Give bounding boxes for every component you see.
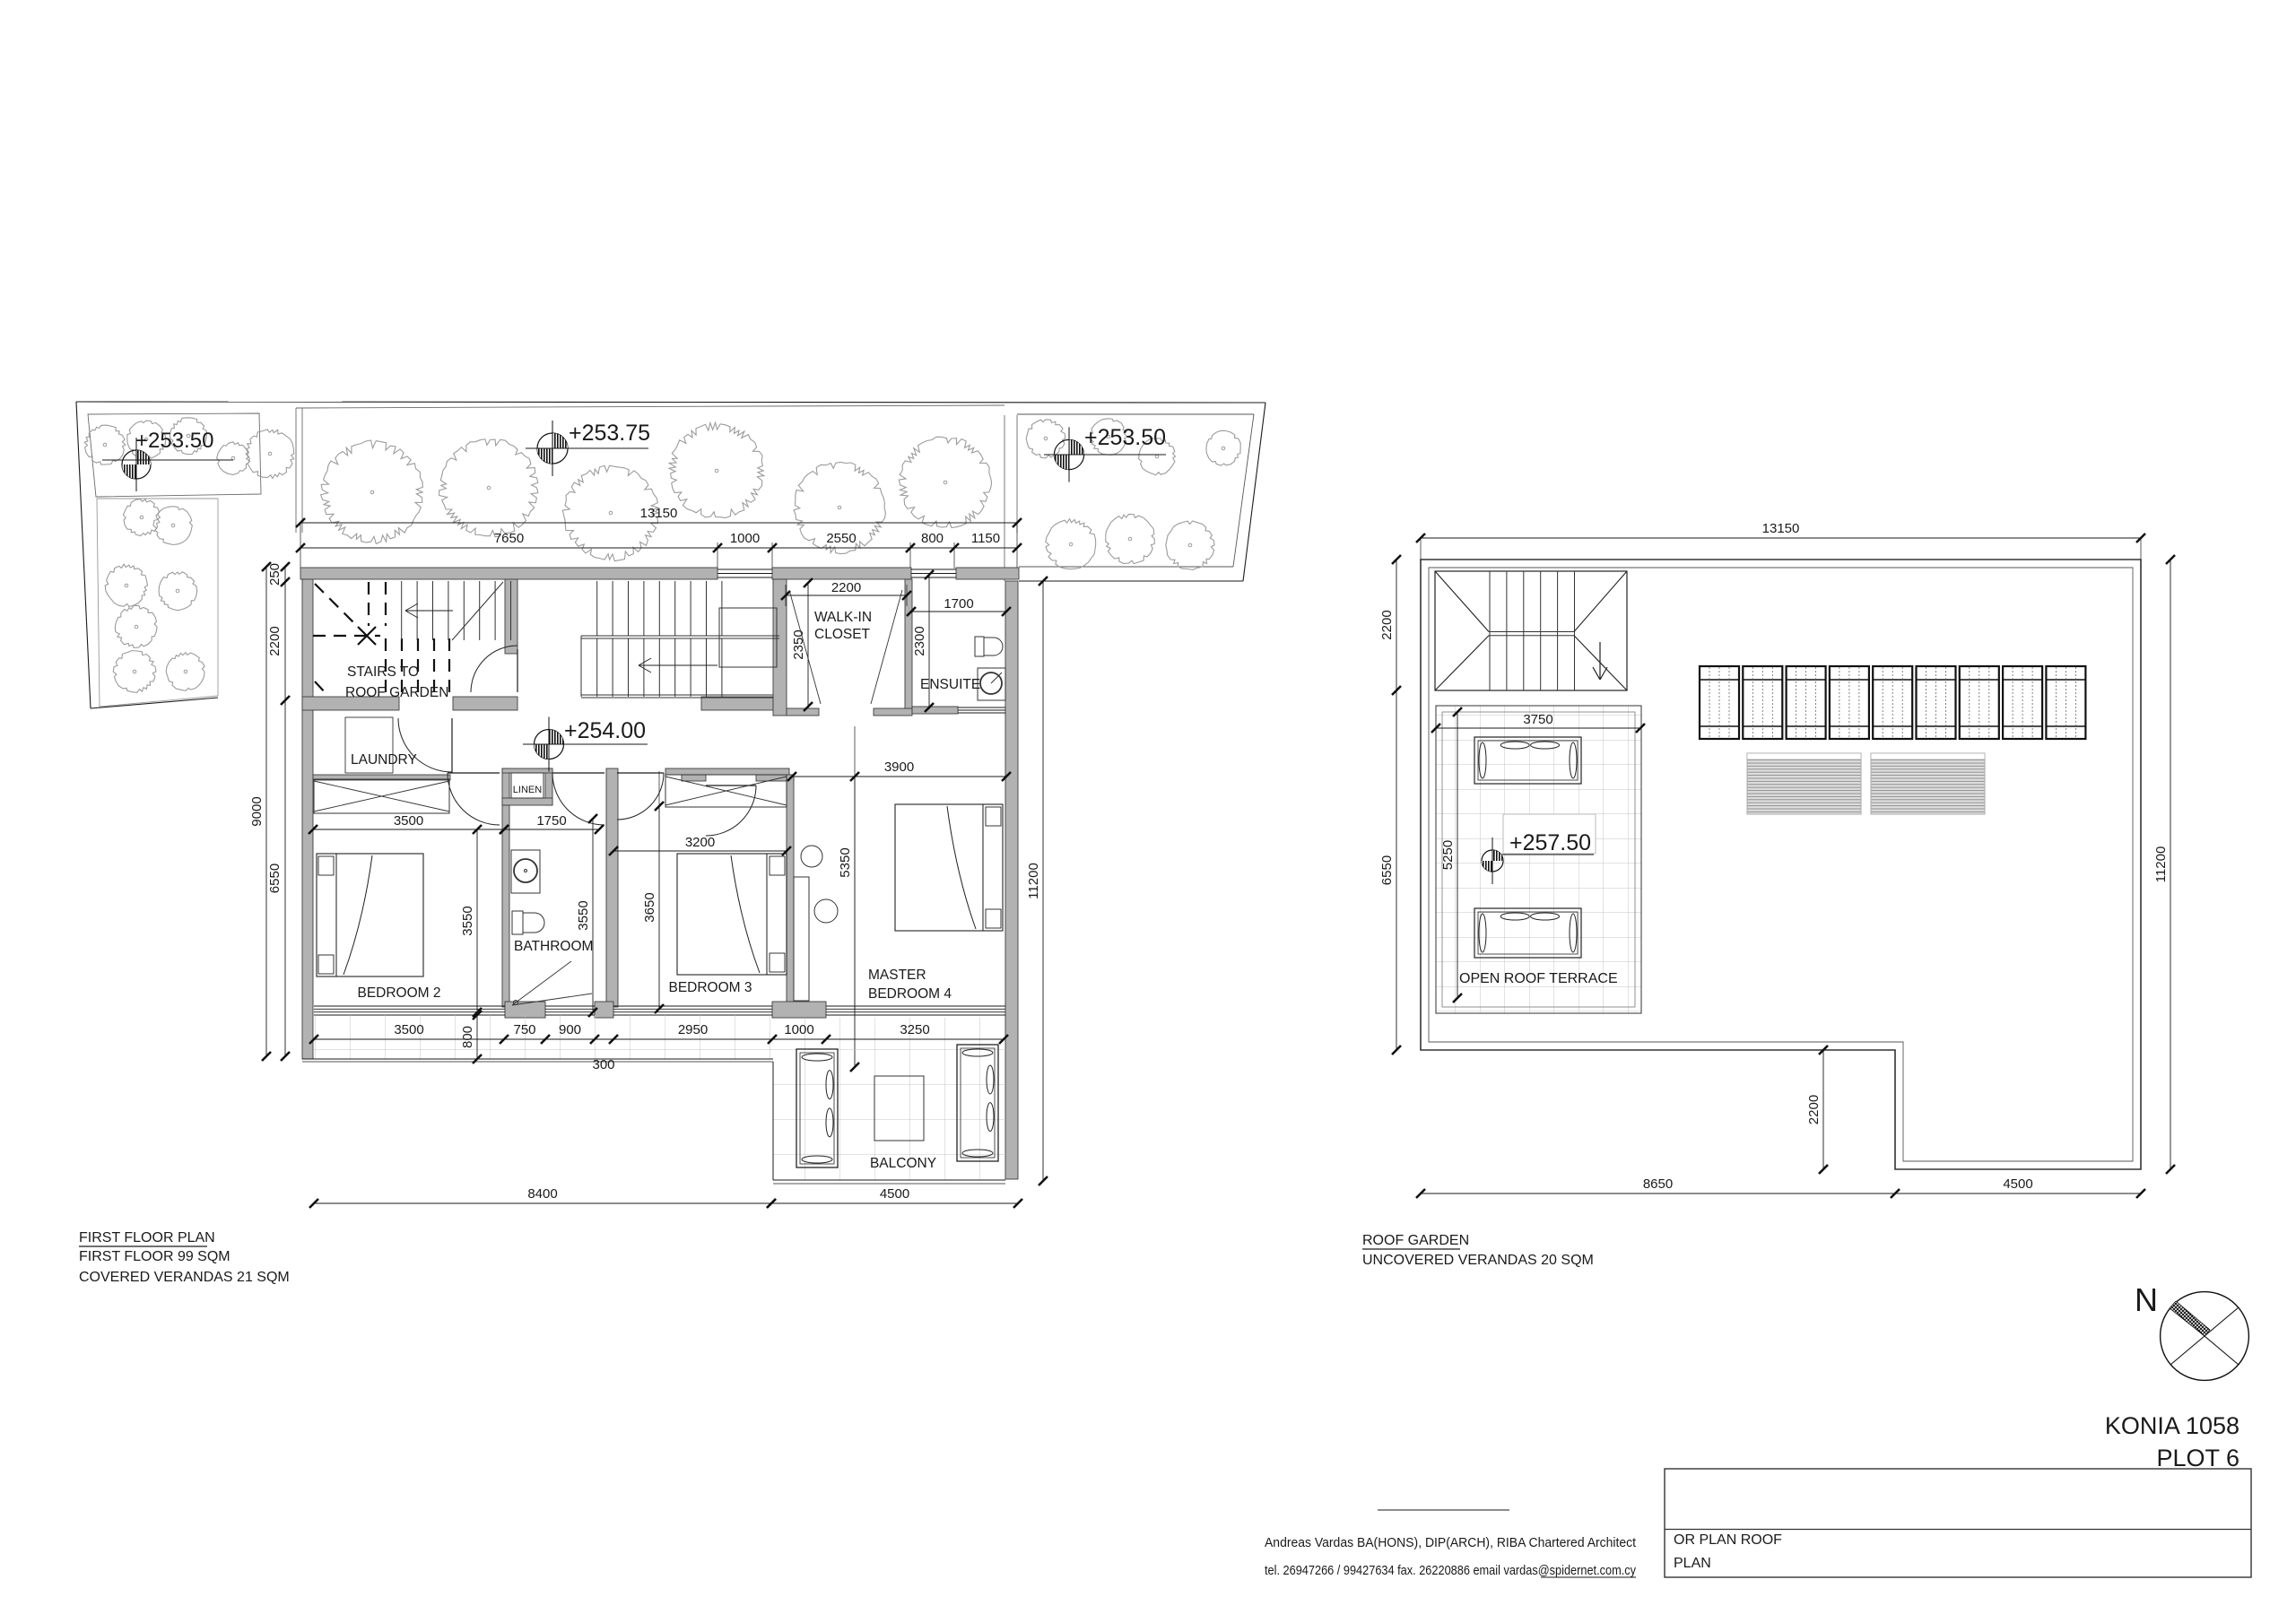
- svg-text:+254.00: +254.00: [564, 718, 646, 743]
- svg-text:1000: 1000: [730, 531, 760, 546]
- svg-text:1750: 1750: [536, 813, 566, 829]
- svg-text:2200: 2200: [1379, 610, 1395, 639]
- svg-text:OR PLAN ROOF: OR PLAN ROOF: [1674, 1532, 1782, 1548]
- svg-text:3500: 3500: [394, 813, 423, 829]
- svg-text:KONIA 1058: KONIA 1058: [2105, 1412, 2239, 1439]
- svg-text:2200: 2200: [831, 580, 861, 595]
- svg-text:CLOSET: CLOSET: [814, 627, 871, 642]
- svg-text:11200: 11200: [1026, 863, 1041, 899]
- svg-text:PLAN: PLAN: [1674, 1556, 1711, 1571]
- svg-text:2200: 2200: [267, 626, 283, 655]
- svg-text:8650: 8650: [1643, 1176, 1673, 1192]
- svg-text:3900: 3900: [884, 759, 914, 775]
- svg-text:750: 750: [513, 1022, 535, 1037]
- svg-text:+253.50: +253.50: [1084, 425, 1166, 450]
- svg-text:BALCONY: BALCONY: [870, 1156, 936, 1171]
- svg-text:2550: 2550: [826, 531, 856, 546]
- svg-text:COVERED VERANDAS 21 SQM: COVERED VERANDAS 21 SQM: [79, 1270, 290, 1285]
- svg-text:250: 250: [267, 563, 283, 586]
- svg-text:Andreas Vardas BA(HONS), DIP(: Andreas Vardas BA(HONS), DIP(ARCH), RIBA…: [1265, 1535, 1637, 1550]
- svg-text:3500: 3500: [394, 1022, 423, 1037]
- svg-text:+253.50: +253.50: [135, 429, 213, 453]
- svg-text:FIRST FLOOR PLAN: FIRST FLOOR PLAN: [79, 1230, 215, 1245]
- svg-text:6550: 6550: [267, 864, 283, 893]
- svg-text:3550: 3550: [576, 900, 591, 930]
- svg-text:BATHROOM: BATHROOM: [514, 939, 593, 954]
- svg-text:UNCOVERED VERANDAS 20 SQM: UNCOVERED VERANDAS 20 SQM: [1362, 1253, 1594, 1268]
- svg-text:3250: 3250: [900, 1022, 929, 1037]
- svg-text:2950: 2950: [678, 1022, 708, 1037]
- svg-text:2300: 2300: [912, 626, 927, 655]
- svg-text:ENSUITE: ENSUITE: [920, 677, 980, 692]
- svg-text:1150: 1150: [971, 531, 1000, 546]
- svg-text:2200: 2200: [1806, 1095, 1822, 1124]
- svg-text:9000: 9000: [249, 796, 265, 826]
- svg-text:MASTER: MASTER: [868, 968, 926, 983]
- svg-text:BEDROOM 2: BEDROOM 2: [357, 985, 440, 1001]
- svg-text:800: 800: [921, 531, 944, 546]
- svg-text:OPEN ROOF TERRACE: OPEN ROOF TERRACE: [1459, 971, 1618, 986]
- svg-text:13150: 13150: [640, 506, 678, 521]
- svg-text:LAUNDRY: LAUNDRY: [351, 752, 417, 768]
- svg-text:LINEN: LINEN: [513, 785, 542, 795]
- svg-text:STAIRS TO: STAIRS TO: [347, 664, 419, 680]
- svg-text:1700: 1700: [944, 596, 973, 612]
- svg-text:300: 300: [592, 1057, 614, 1072]
- svg-text:FIRST FLOOR 99 SQM: FIRST FLOOR 99 SQM: [79, 1249, 230, 1264]
- svg-text:3750: 3750: [1523, 712, 1552, 727]
- svg-text:3200: 3200: [685, 835, 715, 850]
- svg-text:BEDROOM 4: BEDROOM 4: [868, 986, 952, 1002]
- svg-text:+253.75: +253.75: [569, 421, 650, 446]
- svg-text:13150: 13150: [1762, 521, 1800, 536]
- svg-text:11200: 11200: [2153, 846, 2169, 883]
- svg-text:N: N: [2135, 1281, 2158, 1318]
- svg-text:800: 800: [460, 1026, 475, 1048]
- svg-text:1000: 1000: [784, 1022, 813, 1037]
- svg-text:BEDROOM 3: BEDROOM 3: [668, 980, 752, 995]
- svg-text:PLOT 6: PLOT 6: [2156, 1445, 2239, 1471]
- svg-text:WALK-IN: WALK-IN: [814, 610, 872, 625]
- svg-text:+257.50: +257.50: [1509, 830, 1591, 855]
- svg-text:3650: 3650: [642, 892, 657, 922]
- svg-text:5350: 5350: [838, 847, 853, 877]
- svg-text:ROOF GARDEN: ROOF GARDEN: [345, 685, 448, 700]
- svg-text:tel. 26947266 / 99427634 fax.: tel. 26947266 / 99427634 fax. 26220886 e…: [1265, 1563, 1636, 1578]
- svg-text:ROOF GARDEN: ROOF GARDEN: [1362, 1233, 1469, 1248]
- svg-text:8400: 8400: [527, 1186, 557, 1202]
- svg-text:5250: 5250: [1440, 840, 1456, 870]
- svg-text:4500: 4500: [880, 1186, 909, 1202]
- svg-text:6550: 6550: [1379, 855, 1395, 885]
- svg-text:7650: 7650: [494, 531, 524, 546]
- svg-text:4500: 4500: [2003, 1176, 2032, 1192]
- svg-text:3550: 3550: [460, 906, 475, 935]
- svg-text:900: 900: [559, 1022, 581, 1037]
